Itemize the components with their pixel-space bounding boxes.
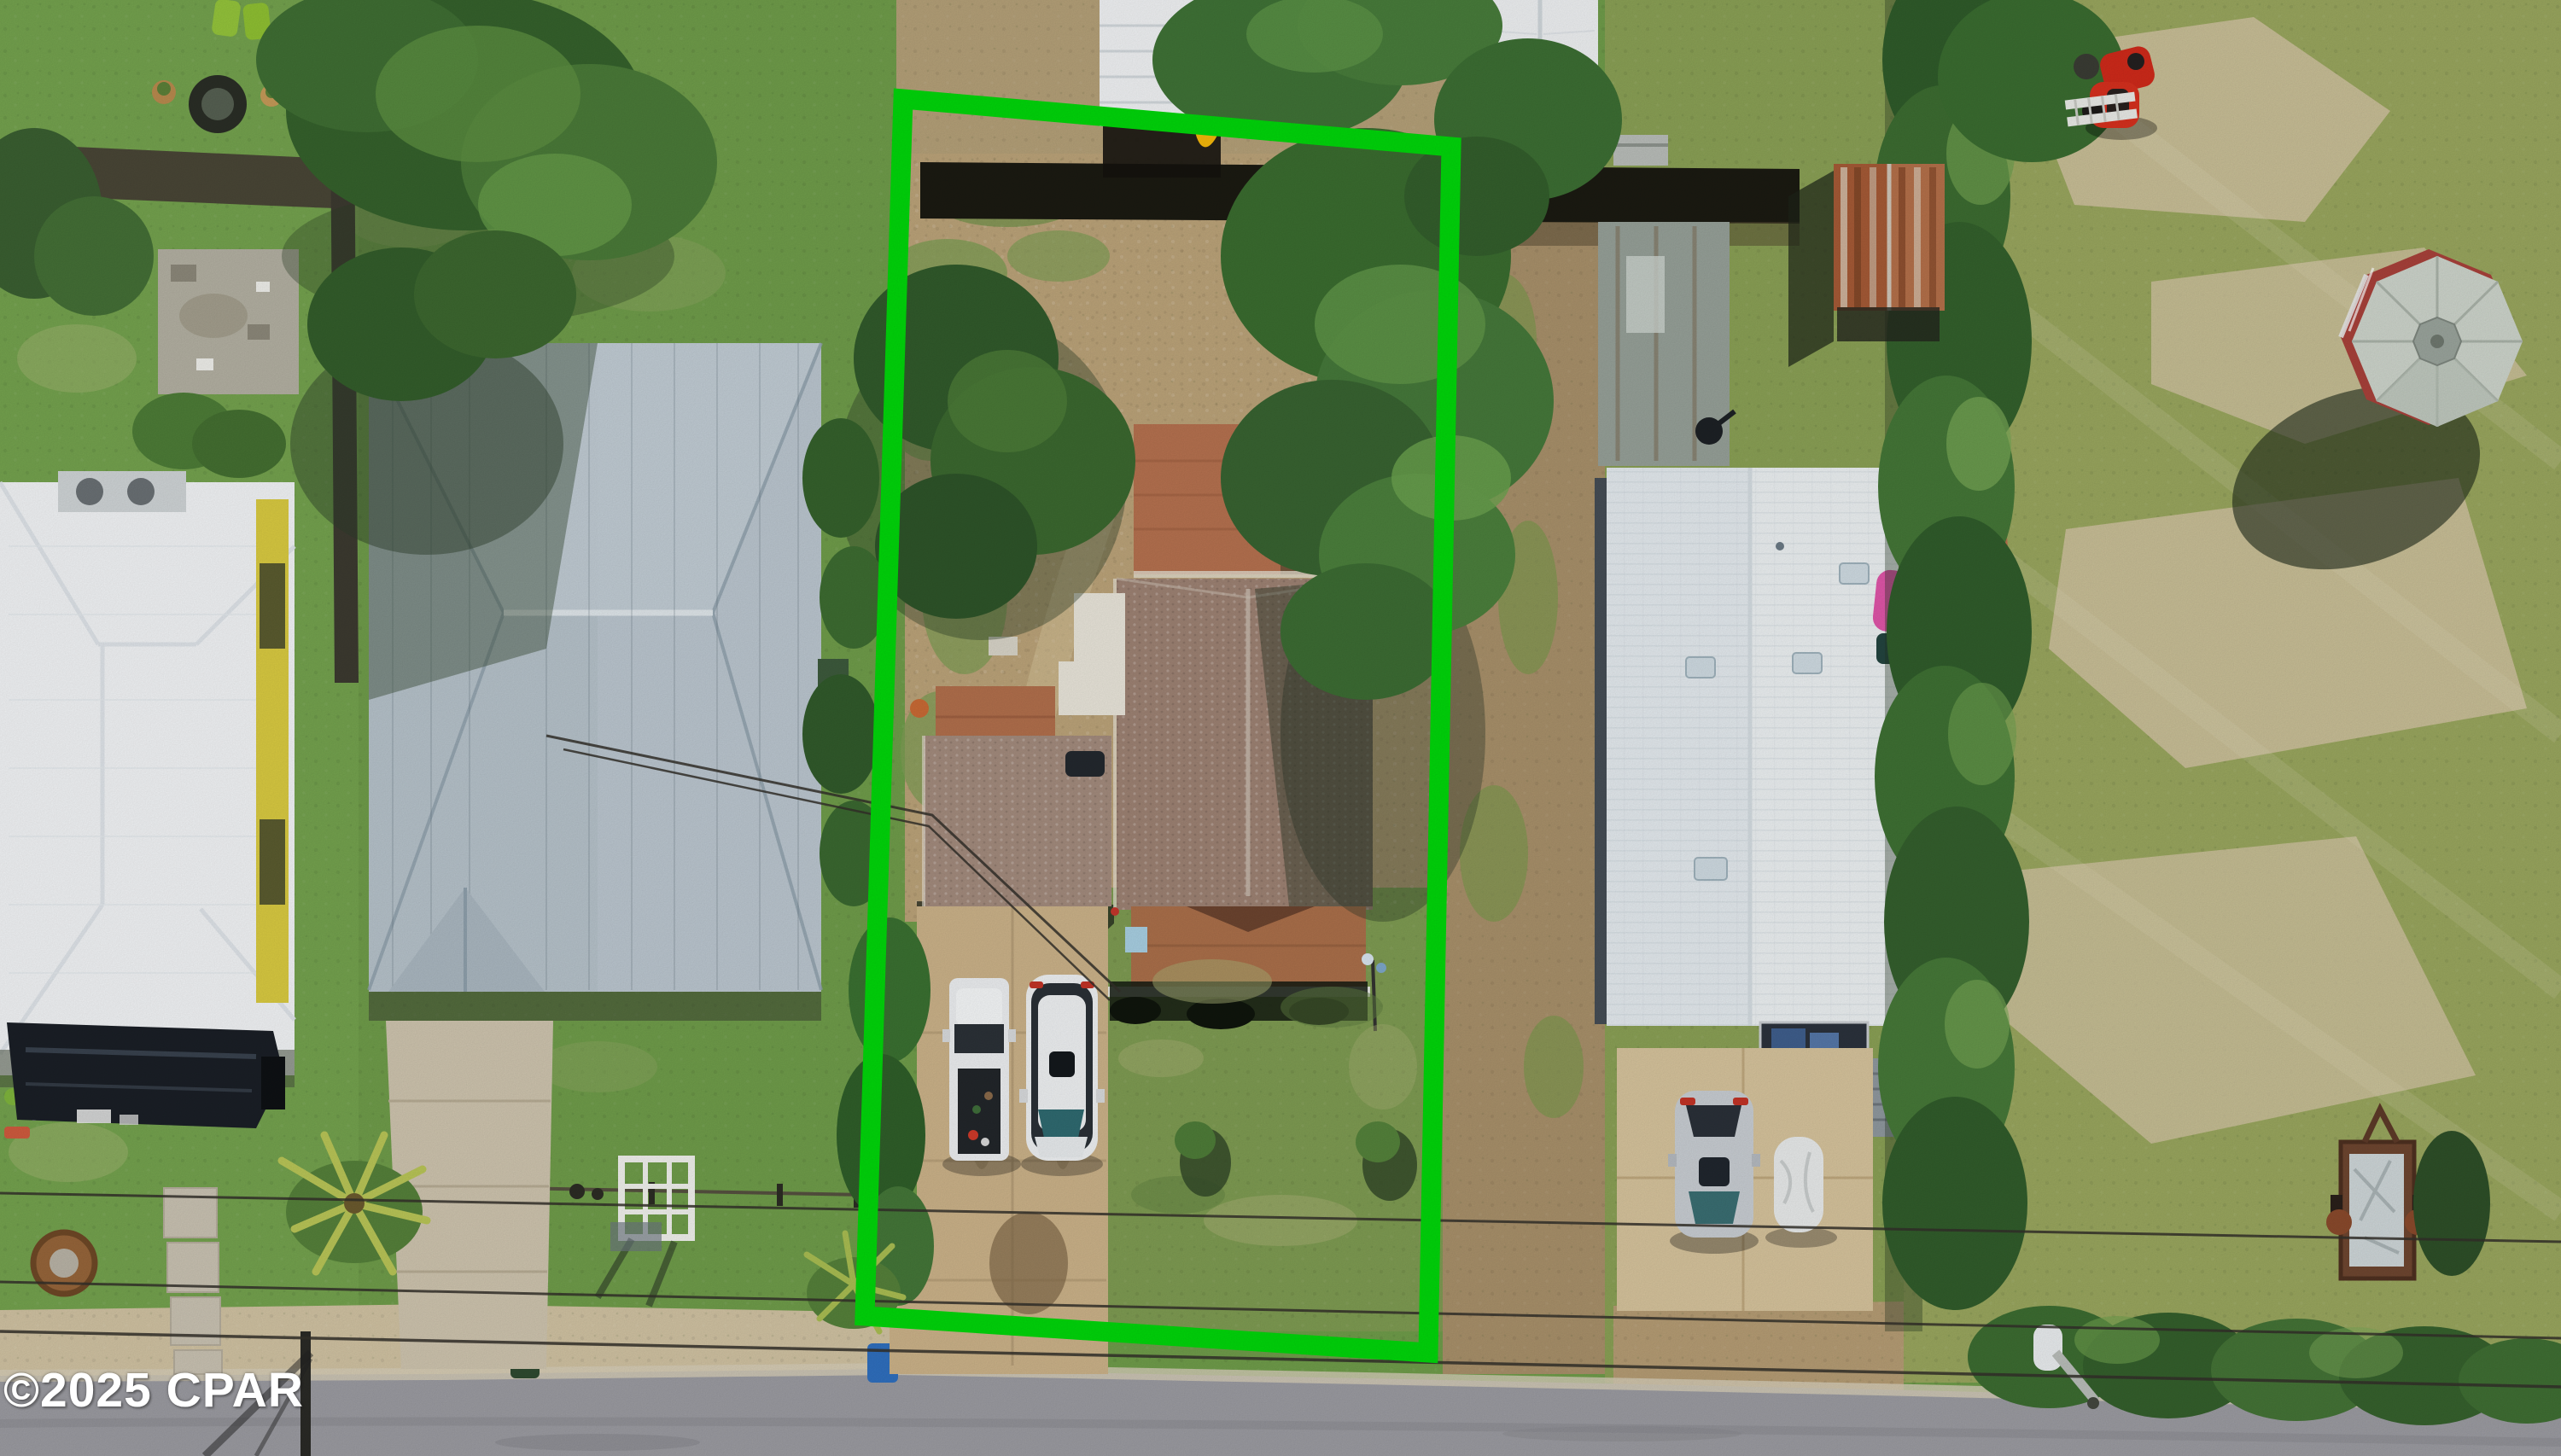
copyright-watermark: ©2025 CPAR bbox=[3, 1362, 304, 1418]
photo-grain bbox=[0, 0, 2561, 1456]
scene-canvas bbox=[0, 0, 2561, 1456]
aerial-photo: ©2025 CPAR bbox=[0, 0, 2561, 1456]
